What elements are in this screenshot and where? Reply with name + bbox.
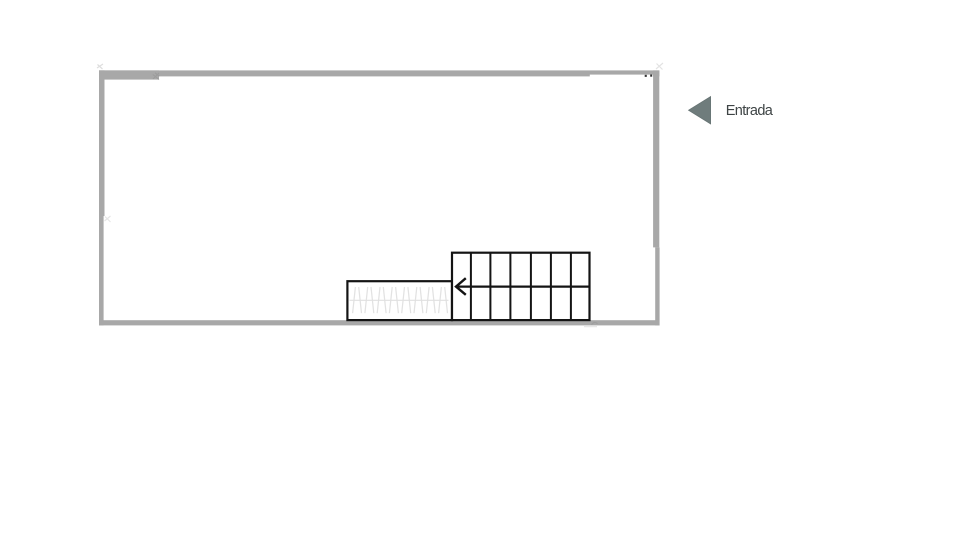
svg-text:Entrada: Entrada bbox=[726, 103, 774, 119]
